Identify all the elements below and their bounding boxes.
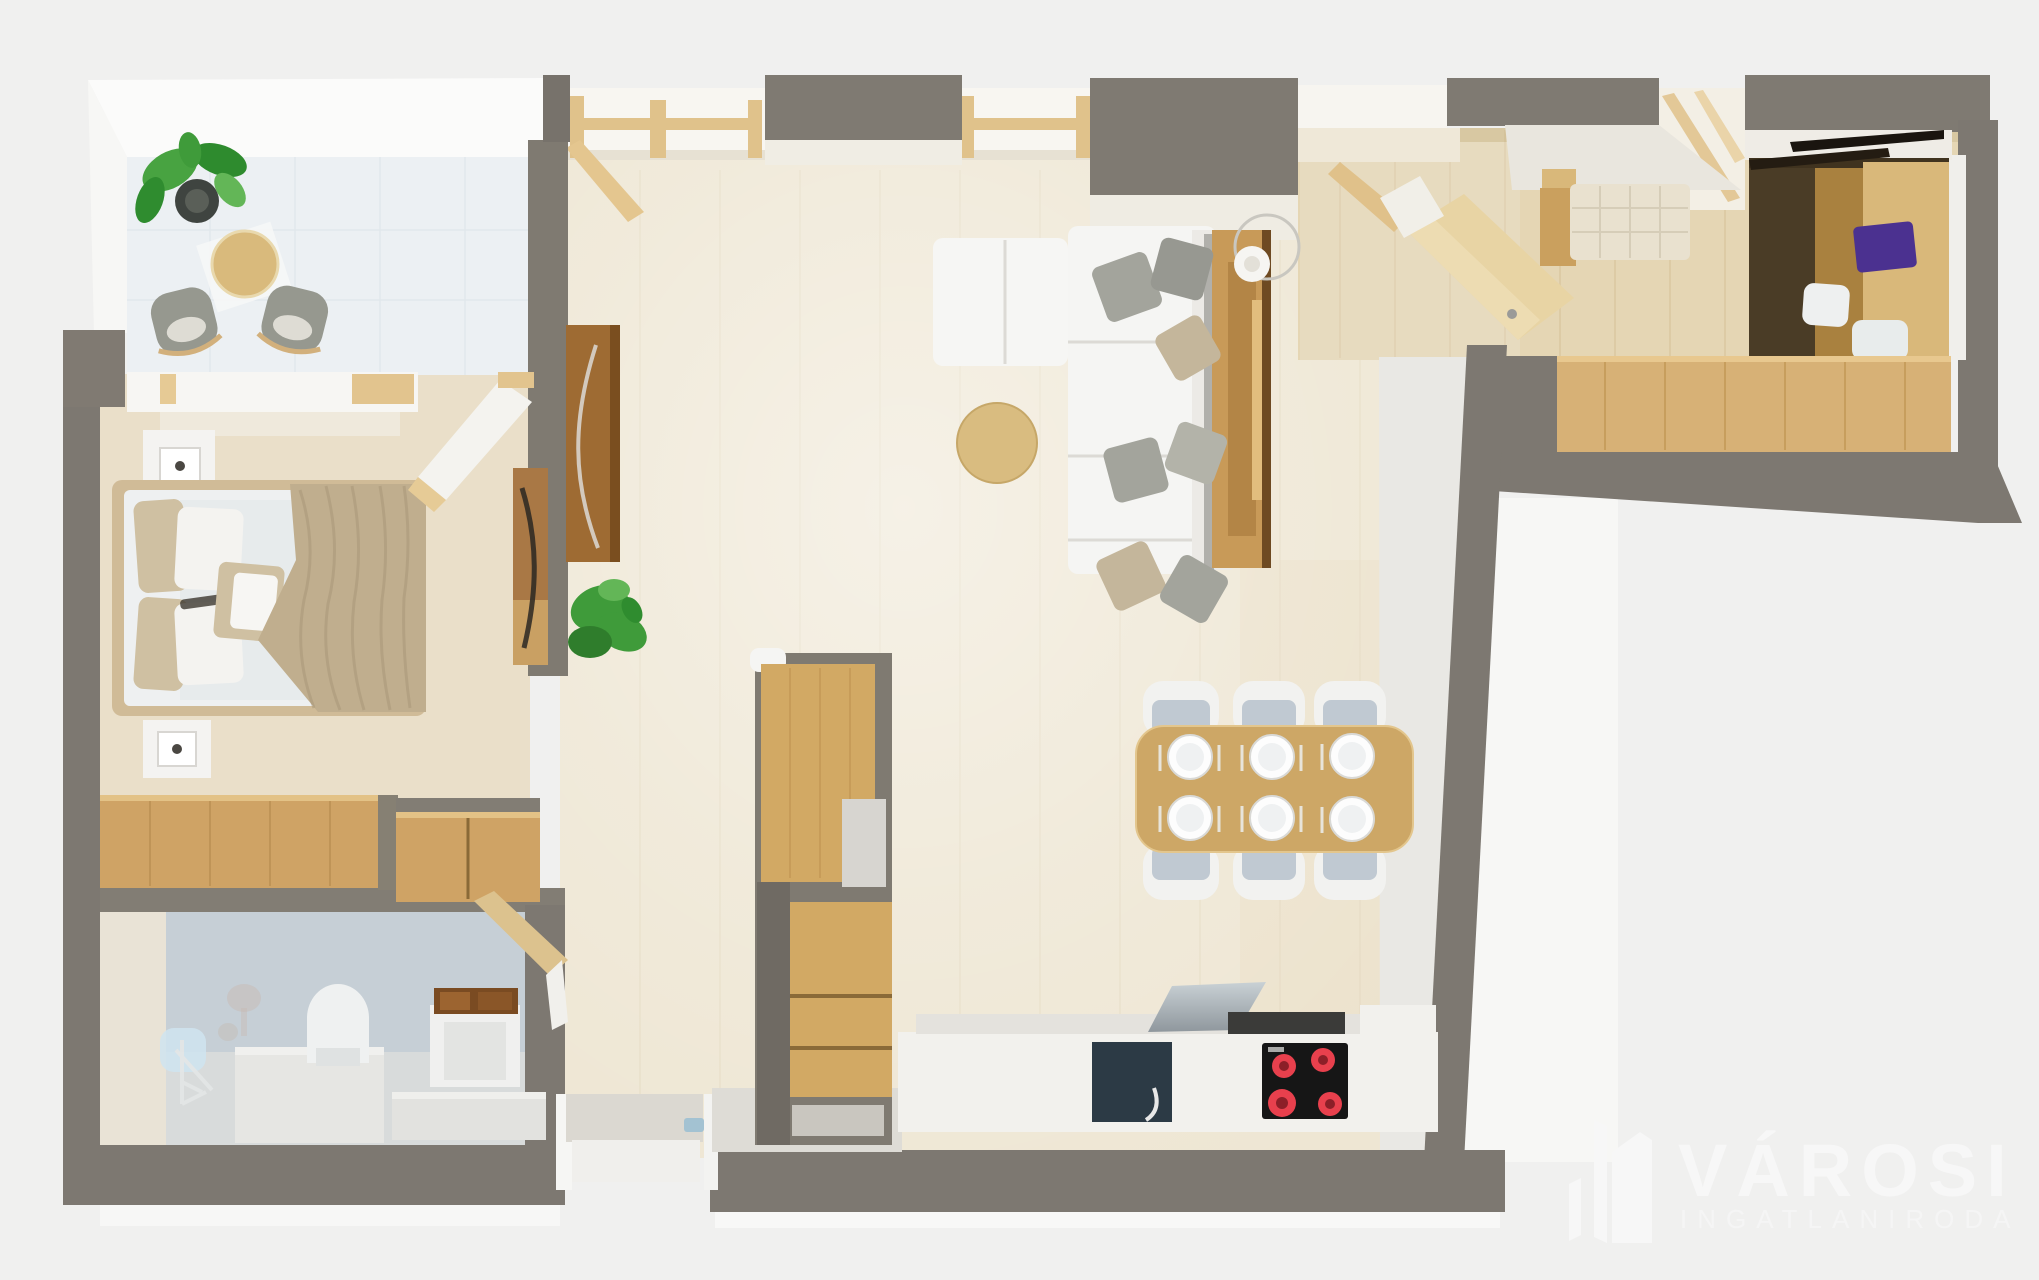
svg-text:INGATLANIRODA: INGATLANIRODA — [1680, 1204, 2020, 1234]
svg-text:VÁROSI: VÁROSI — [1678, 1129, 2016, 1212]
